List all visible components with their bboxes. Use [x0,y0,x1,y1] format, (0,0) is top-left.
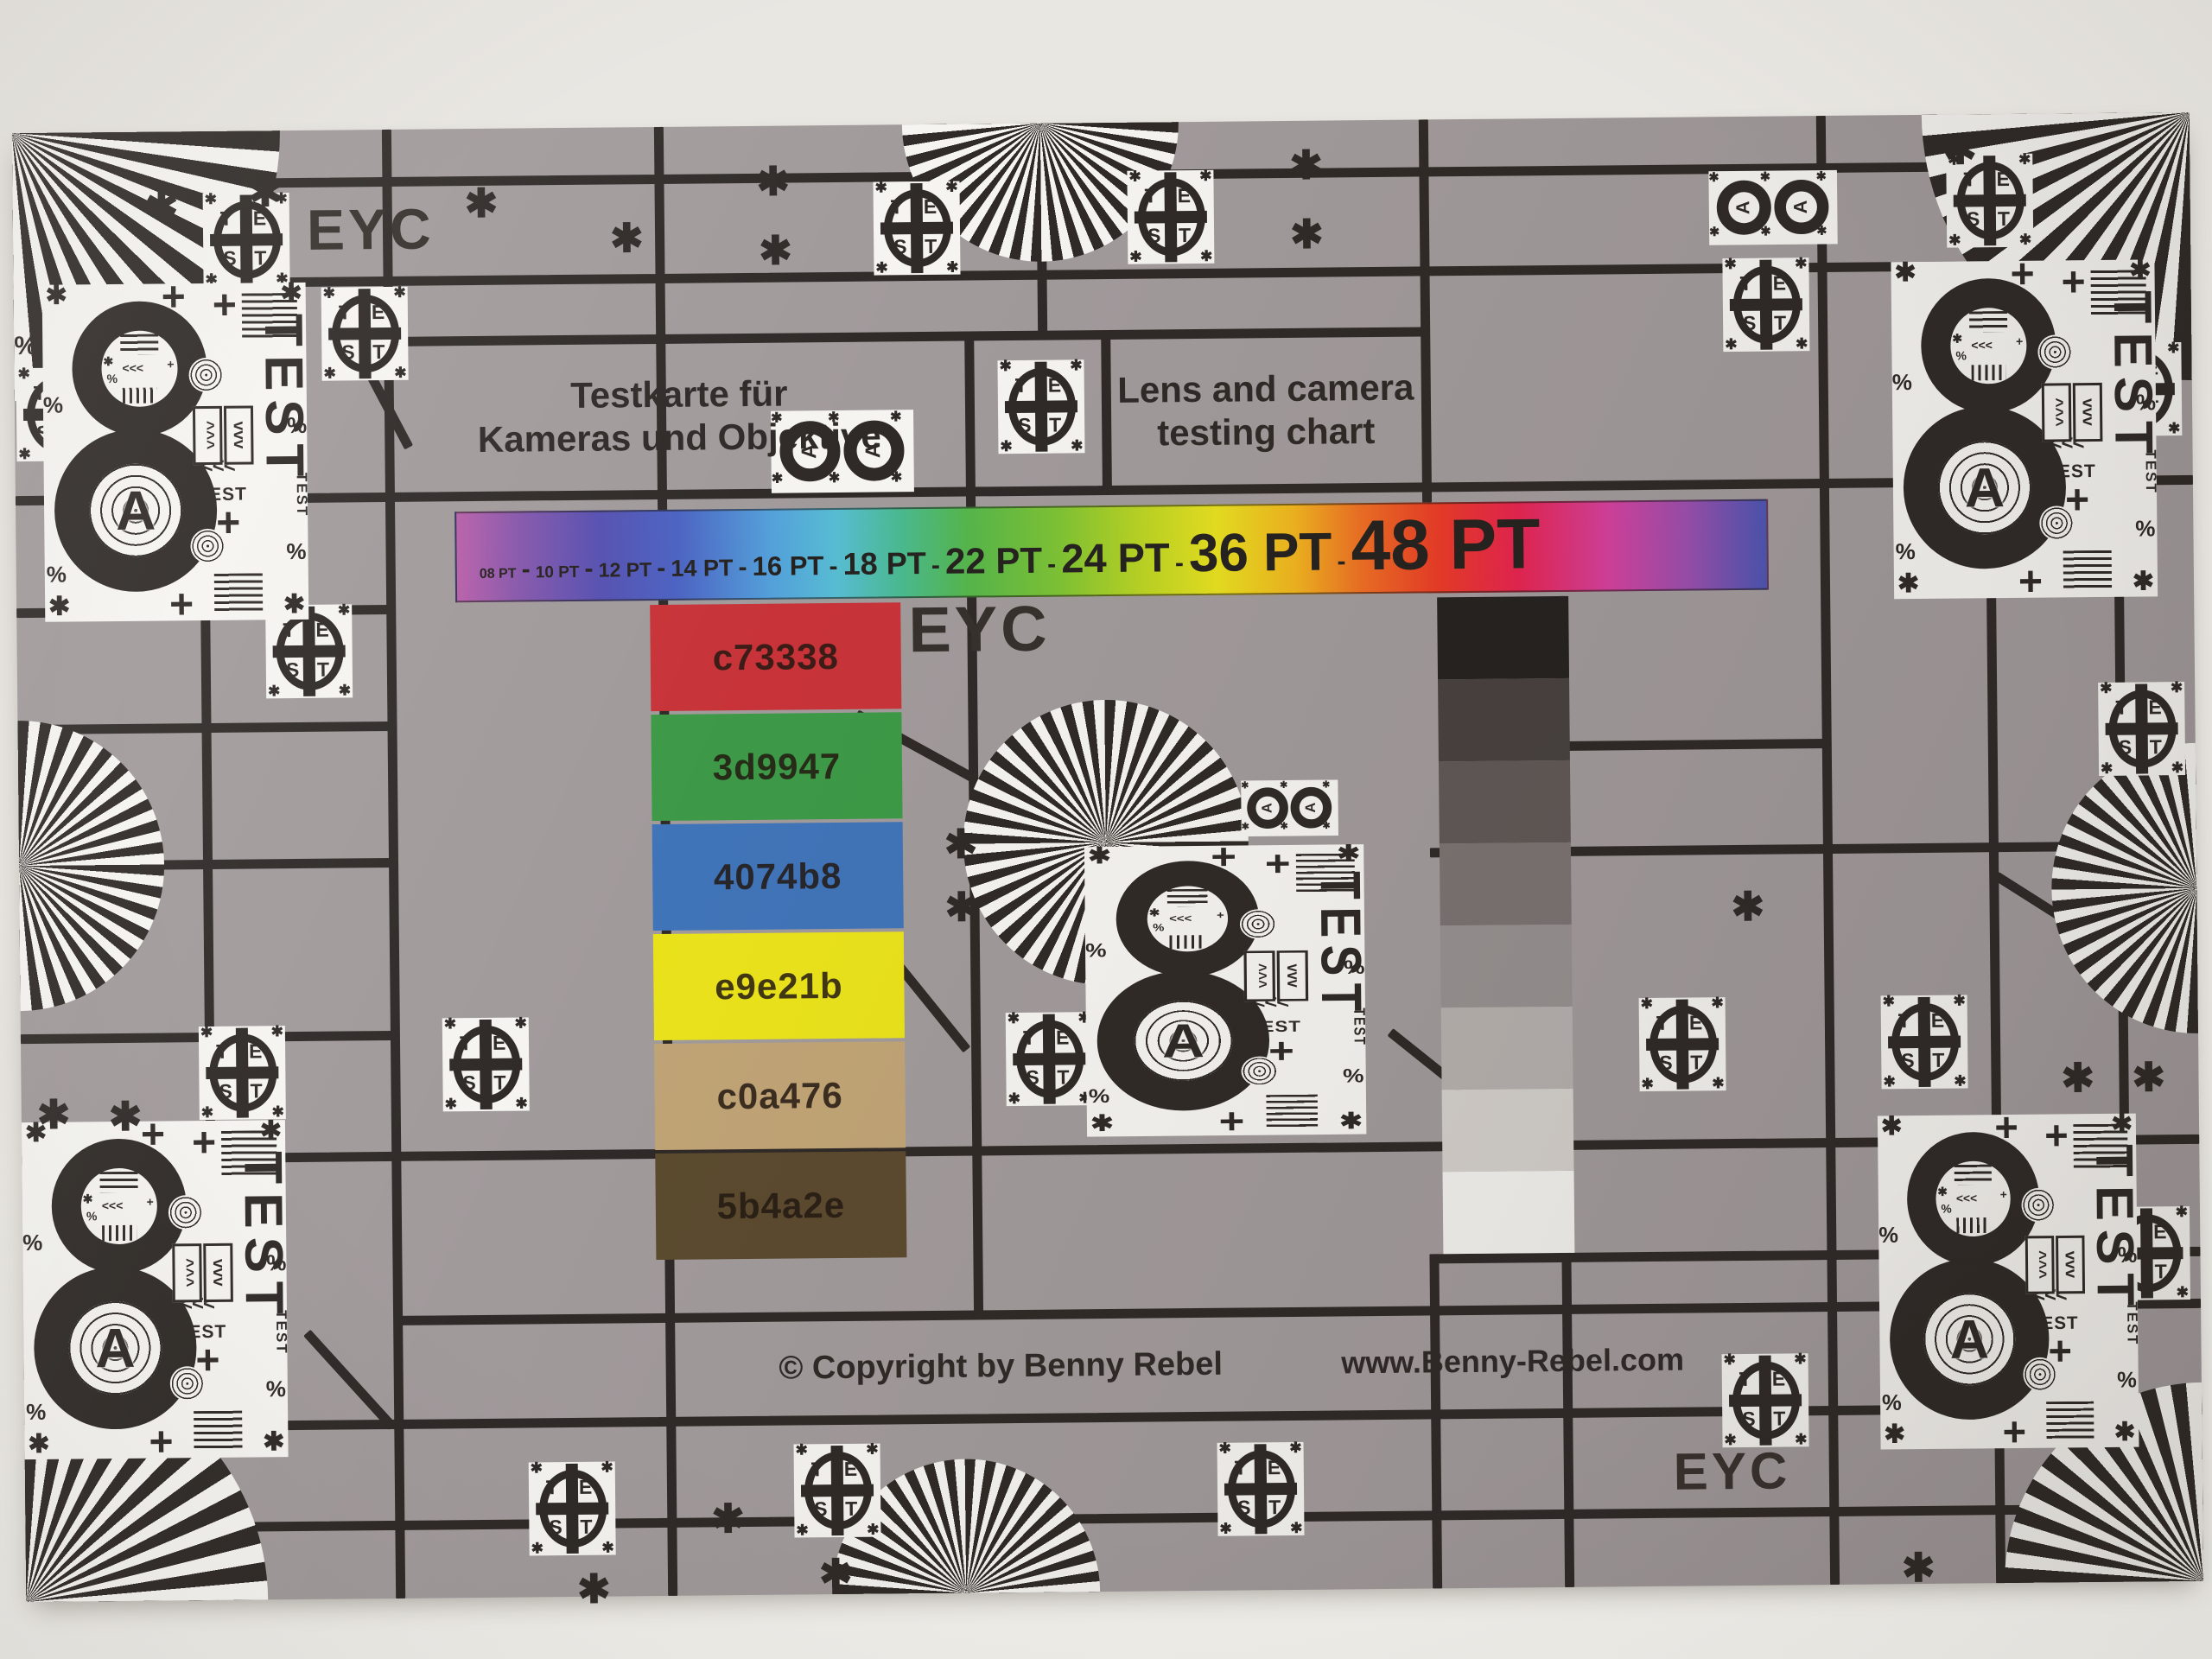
title-english-line2: testing chart [1106,409,1426,455]
title-german-line1: Testkarte für [389,370,969,419]
title-german: Testkarte für Kameras und Objektive [388,336,970,497]
eyc-label-center: EYC [908,597,1051,663]
eyc-label-bottom-right: EYC [1674,1445,1791,1497]
lens-testing-chart: 08 PT - 10 PT - 12 PT - 14 PT - 16 PT - … [12,112,2203,1602]
photo-of-test-chart: { "photo": { "background_top": "#e9e7e2"… [0,0,2212,1659]
text-layer: EYC EYC EYC Testkarte für Kameras und Ob… [12,112,2203,1602]
title-german-line2: Kameras und Objektive [389,414,969,463]
copyright-text: © Copyright by Benny Rebel [670,1322,1332,1411]
website-text: www.Benny-Rebel.com [1331,1319,1694,1405]
eyc-label-top-left: EYC [307,200,435,257]
title-english-line1: Lens and camera [1106,365,1426,412]
title-english: Lens and camera testing chart [1105,331,1427,490]
